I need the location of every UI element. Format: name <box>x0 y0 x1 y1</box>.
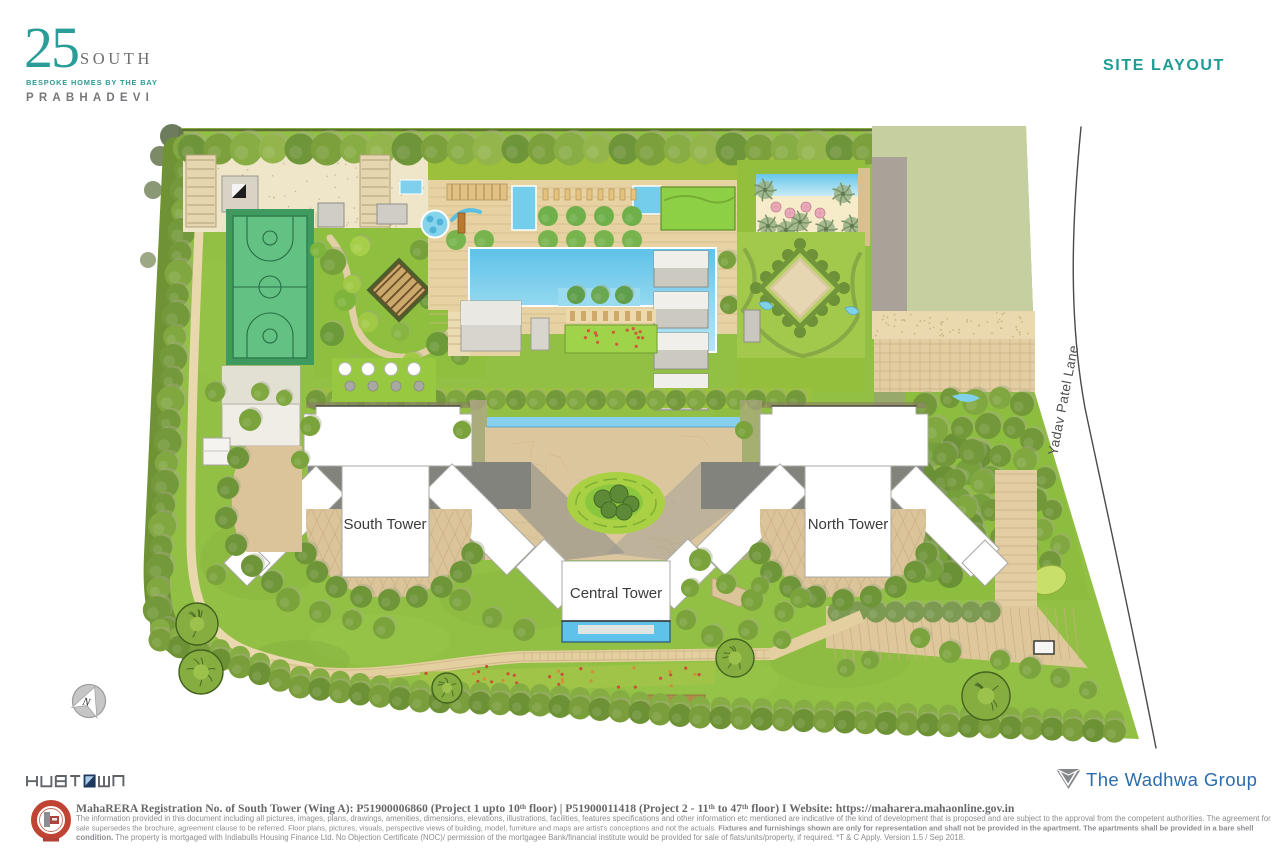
svg-text:BESPOKE HOMES BY THE BAY: BESPOKE HOMES BY THE BAY <box>26 78 158 87</box>
svg-text:The information provided in th: The information provided in this documen… <box>76 814 1271 823</box>
svg-text:PRABHADEVI: PRABHADEVI <box>26 92 154 104</box>
svg-text:SOUTH: SOUTH <box>80 49 153 68</box>
svg-text:SITE LAYOUT: SITE LAYOUT <box>1103 57 1225 74</box>
svg-text:North Tower: North Tower <box>808 516 889 533</box>
svg-text:Central Tower: Central Tower <box>570 585 662 602</box>
svg-text:sale supersedes the brochure,: sale supersedes the brochure, agreement … <box>76 824 1253 833</box>
svg-text:condition. The property is mor: condition. The property is mortgaged wit… <box>76 833 965 842</box>
svg-text:25: 25 <box>24 15 78 80</box>
svg-text:South Tower: South Tower <box>343 516 426 533</box>
svg-text:The Wadhwa Group: The Wadhwa Group <box>1086 769 1257 790</box>
